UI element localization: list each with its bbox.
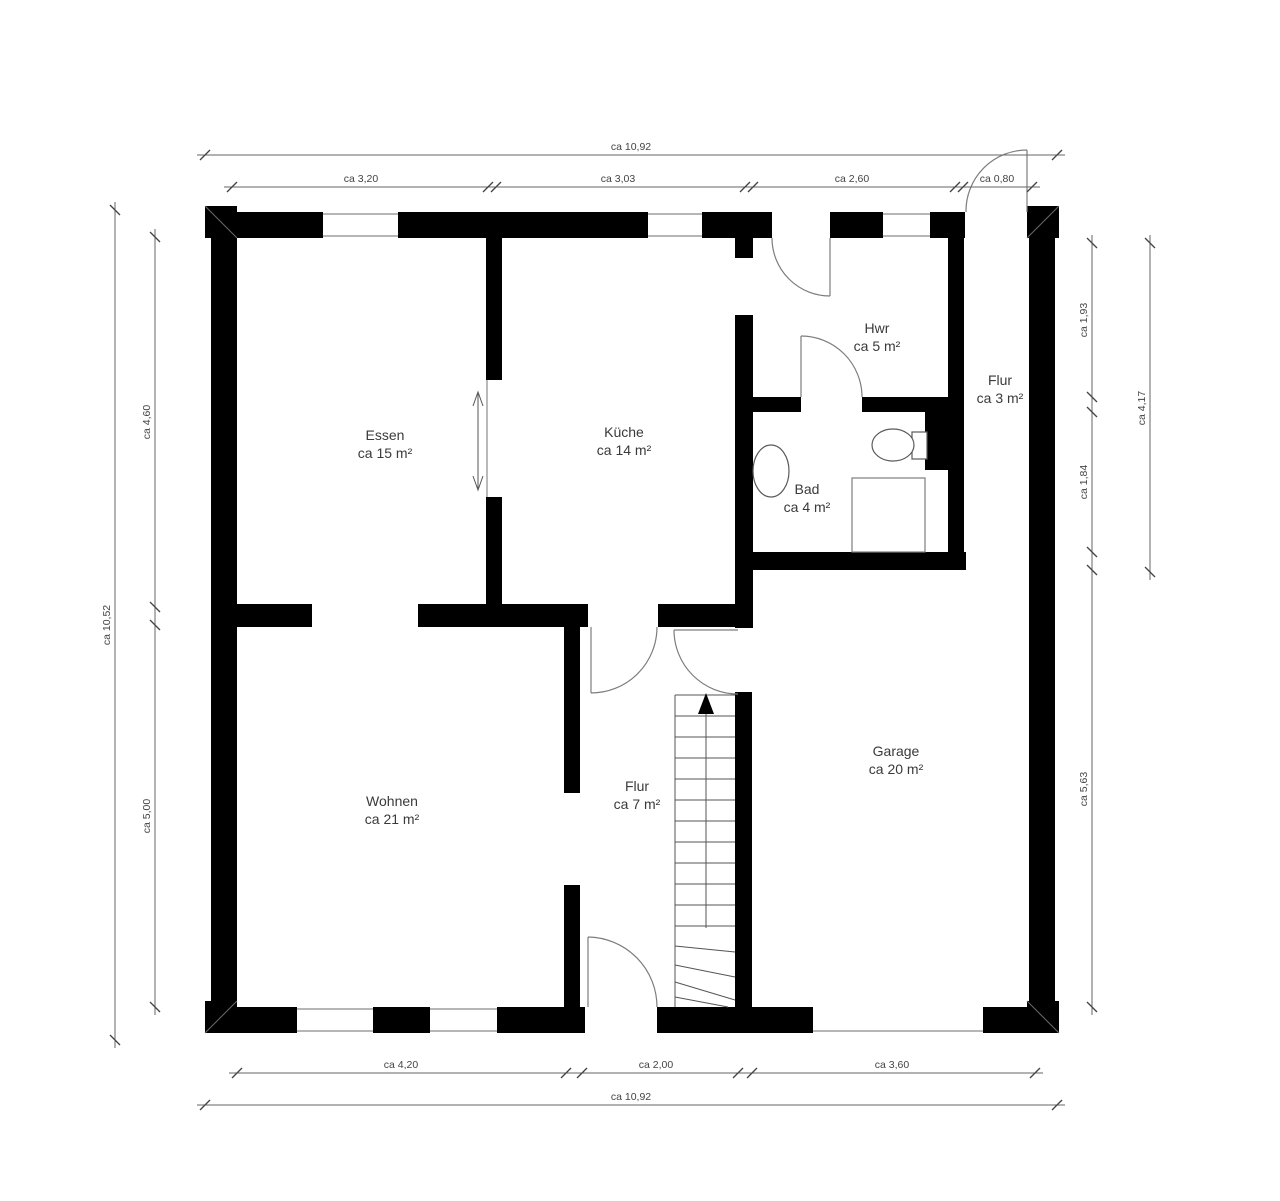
room-name: Wohnen xyxy=(366,793,418,809)
room-name: Garage xyxy=(873,743,920,759)
door-south-entrance xyxy=(588,937,657,1007)
dim-top-segment-3: ca 0,80 xyxy=(980,173,1015,185)
dim-left-segment-0: ca 4,60 xyxy=(141,405,153,440)
floor-plan-drawing: ca 10,92 ca 3,20 ca 3,03 ca 2,60 ca 0,80… xyxy=(0,0,1280,1201)
room-name: Flur xyxy=(625,778,649,794)
wall-segment xyxy=(735,692,752,1007)
corner-post xyxy=(1027,206,1059,238)
room-area: ca 3 m² xyxy=(977,390,1024,406)
room-area: ca 5 m² xyxy=(854,338,901,354)
wall-segment xyxy=(657,1007,813,1033)
door-flur-garage xyxy=(674,630,738,694)
dim-top-total: ca 10,92 xyxy=(611,141,651,153)
corner-post xyxy=(1027,1001,1059,1033)
room-area: ca 20 m² xyxy=(869,761,924,777)
wall-segment xyxy=(486,238,502,380)
wall-segment xyxy=(497,1007,585,1033)
room-label-kueche: Küche ca 14 m² xyxy=(597,424,652,458)
wall-segment xyxy=(752,552,966,570)
wall-segment xyxy=(1029,238,1055,1007)
room-area: ca 7 m² xyxy=(614,796,661,812)
door-hwr-north xyxy=(772,238,830,296)
wall-segment xyxy=(735,315,753,628)
washbasin-icon xyxy=(753,445,789,497)
wall-segment xyxy=(983,1007,1029,1033)
wall-segment xyxy=(398,212,648,238)
dim-top-segment-1: ca 3,03 xyxy=(601,173,636,185)
window xyxy=(430,1009,497,1031)
wall-segment xyxy=(564,627,580,793)
room-name: Bad xyxy=(795,481,820,497)
passage-essen-kueche xyxy=(473,380,487,497)
dim-left-segment-1: ca 5,00 xyxy=(141,799,153,834)
room-label-flur-klein: Flur ca 3 m² xyxy=(977,372,1024,406)
dim-bottom-segment-1: ca 2,00 xyxy=(639,1059,674,1071)
room-label-flur-gross: Flur ca 7 m² xyxy=(614,778,661,812)
wall-segment xyxy=(925,412,948,470)
wall-segment xyxy=(702,212,772,238)
window xyxy=(648,214,702,236)
shower-icon xyxy=(852,478,925,552)
wall-segment xyxy=(752,397,801,412)
room-area: ca 4 m² xyxy=(784,499,831,515)
room-name: Küche xyxy=(604,424,644,440)
staircase xyxy=(675,693,735,1007)
corner-post xyxy=(205,1001,237,1033)
dim-top-segment-2: ca 2,60 xyxy=(835,173,870,185)
room-labels: Essen ca 15 m² Küche ca 14 m² Hwr ca 5 m… xyxy=(358,320,1024,827)
wall-segment xyxy=(564,885,580,1007)
exterior-walls xyxy=(205,206,1059,1033)
wall-segment xyxy=(930,212,965,238)
room-name: Flur xyxy=(988,372,1012,388)
door-kueche-flur xyxy=(591,627,657,693)
dim-right-segment-0: ca 1,93 xyxy=(1078,303,1090,338)
dim-right-segment-1: ca 1,84 xyxy=(1078,465,1090,500)
wall-segment xyxy=(948,238,964,570)
window xyxy=(883,214,930,236)
dim-bottom-segment-0: ca 4,20 xyxy=(384,1059,419,1071)
room-label-bad: Bad ca 4 m² xyxy=(784,481,831,515)
room-name: Hwr xyxy=(865,320,890,336)
room-label-wohnen: Wohnen ca 21 m² xyxy=(365,793,420,827)
dim-left-total: ca 10,52 xyxy=(101,605,113,645)
room-label-garage: Garage ca 20 m² xyxy=(869,743,924,777)
room-name: Essen xyxy=(366,427,405,443)
dim-bottom-total: ca 10,92 xyxy=(611,1091,651,1103)
wall-segment xyxy=(418,604,588,627)
double-arrow-icon xyxy=(473,392,483,490)
dim-top-segment-0: ca 3,20 xyxy=(344,173,379,185)
toilet-icon xyxy=(872,429,927,461)
windows xyxy=(297,214,983,1031)
room-area: ca 14 m² xyxy=(597,442,652,458)
dim-right-segment-2: ca 5,63 xyxy=(1078,772,1090,807)
wall-segment xyxy=(373,1007,430,1033)
wall-segment xyxy=(211,238,237,1007)
stair-direction-arrow-icon xyxy=(698,693,714,928)
wall-segment xyxy=(735,238,753,258)
dim-bottom-segment-2: ca 3,60 xyxy=(875,1059,910,1071)
wall-segment xyxy=(237,1007,297,1033)
window xyxy=(323,214,398,236)
wall-segment xyxy=(237,212,323,238)
wall-segment xyxy=(237,604,312,627)
room-label-hwr: Hwr ca 5 m² xyxy=(854,320,901,354)
bath-fixtures xyxy=(753,429,927,552)
corner-post xyxy=(205,206,237,238)
room-area: ca 15 m² xyxy=(358,445,413,461)
dim-right-outer: ca 4,17 xyxy=(1136,391,1148,426)
wall-segment xyxy=(830,212,883,238)
dimension-lines xyxy=(110,150,1155,1110)
window xyxy=(297,1009,373,1031)
room-label-essen: Essen ca 15 m² xyxy=(358,427,413,461)
wall-segment xyxy=(862,397,948,412)
room-area: ca 21 m² xyxy=(365,811,420,827)
floor-plan-page: ca 10,92 ca 3,20 ca 3,03 ca 2,60 ca 0,80… xyxy=(0,0,1280,1201)
